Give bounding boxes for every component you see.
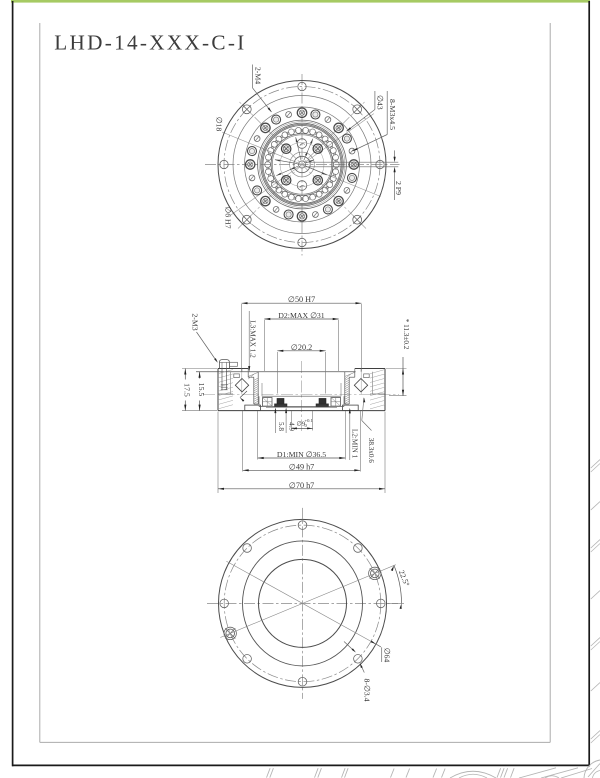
- svg-text:D1:MIN ∅36.5: D1:MIN ∅36.5: [277, 450, 326, 459]
- svg-text:17.5: 17.5: [183, 383, 192, 397]
- svg-text:∅43: ∅43: [376, 95, 385, 110]
- svg-text:15.5: 15.5: [197, 383, 206, 397]
- svg-text:5.8: 5.8: [277, 422, 285, 431]
- svg-text:∅18: ∅18: [215, 117, 224, 132]
- svg-text:8-M3x4.5: 8-M3x4.5: [388, 99, 397, 130]
- svg-text:L2:MIN 1: L2:MIN 1: [351, 429, 359, 459]
- svg-text:∅6 H7: ∅6 H7: [224, 206, 233, 228]
- svg-text:2 P9: 2 P9: [394, 181, 403, 195]
- svg-text:∅49 h7: ∅49 h7: [289, 462, 315, 471]
- svg-text:2-M3: 2-M3: [191, 313, 200, 330]
- svg-text:∅50 H7: ∅50 H7: [288, 295, 315, 304]
- svg-text:8-∅3.4: 8-∅3.4: [363, 678, 372, 701]
- svg-text:D2:MAX ∅31: D2:MAX ∅31: [278, 311, 325, 320]
- svg-text:* 11.3±0.2: * 11.3±0.2: [402, 319, 410, 350]
- svg-text:∅70 h7: ∅70 h7: [289, 481, 315, 490]
- svg-text:∅64: ∅64: [382, 648, 391, 663]
- svg-text:+0.1: +0.1: [305, 418, 314, 423]
- svg-text:LHD-14-XXX-C-I: LHD-14-XXX-C-I: [54, 31, 246, 55]
- svg-text:2-M4: 2-M4: [254, 67, 263, 84]
- svg-text:∅20.2: ∅20.2: [291, 343, 312, 352]
- svg-text:38.3x0.6: 38.3x0.6: [367, 438, 375, 464]
- svg-text:L3:MAX 1.2: L3:MAX 1.2: [248, 320, 256, 358]
